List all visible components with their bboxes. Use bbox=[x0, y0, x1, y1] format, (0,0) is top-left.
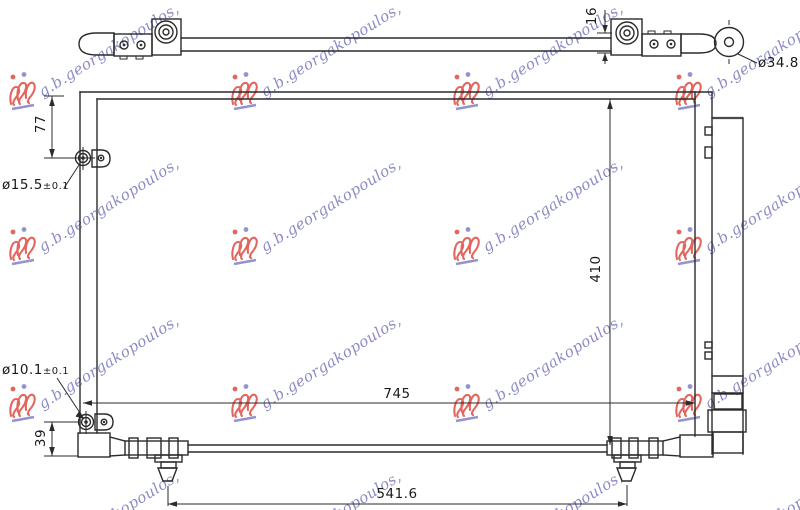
drier-flange bbox=[708, 410, 746, 432]
drier-bracket bbox=[705, 352, 712, 359]
dim-outlet-offset: 39 bbox=[33, 418, 49, 458]
right-port-block bbox=[680, 435, 713, 457]
inlet-tolerance-value: ±0.1 bbox=[43, 181, 69, 192]
outlet-tolerance-value: ±0.1 bbox=[43, 366, 69, 377]
inlet-diameter-value: ø15.5 bbox=[2, 177, 43, 193]
bottom-right-port bbox=[607, 435, 713, 481]
label-outlet-diameter: ø10.1±0.1 bbox=[2, 362, 69, 378]
right-port-pipe bbox=[607, 441, 663, 455]
bottom-left-port bbox=[78, 433, 188, 481]
left-tank-foot bbox=[78, 433, 110, 457]
drier-bottom-cap bbox=[713, 432, 743, 453]
dim-eye-diameter: ø34.8 bbox=[758, 55, 799, 71]
receiver-drier bbox=[705, 118, 746, 454]
dim-ports-span: 541.6 bbox=[367, 486, 427, 502]
top-pipe-assembly bbox=[79, 19, 757, 64]
dim-core-height: 410 bbox=[588, 249, 604, 289]
pipe-eye-ring bbox=[715, 28, 744, 57]
pipe-right-end-cap bbox=[681, 34, 716, 53]
drier-bracket bbox=[705, 127, 712, 135]
pipe-left-end-cap bbox=[79, 33, 114, 55]
label-inlet-diameter: ø15.5±0.1 bbox=[2, 177, 69, 193]
dim-inlet-offset: 77 bbox=[33, 104, 49, 144]
drier-bracket bbox=[705, 342, 712, 348]
condenser-drawing bbox=[0, 0, 800, 510]
leader-eye-diameter bbox=[738, 54, 757, 63]
dim-pipe-height: 16 bbox=[584, 0, 600, 36]
outlet-diameter-value: ø10.1 bbox=[2, 362, 43, 378]
technical-drawing-canvas: g.b.georgakopoulos, g.b.georgakopoulos, … bbox=[0, 0, 800, 510]
drier-bracket bbox=[705, 147, 712, 158]
dim-overall-width: 745 bbox=[372, 386, 422, 402]
outlet-fitting bbox=[44, 378, 113, 434]
